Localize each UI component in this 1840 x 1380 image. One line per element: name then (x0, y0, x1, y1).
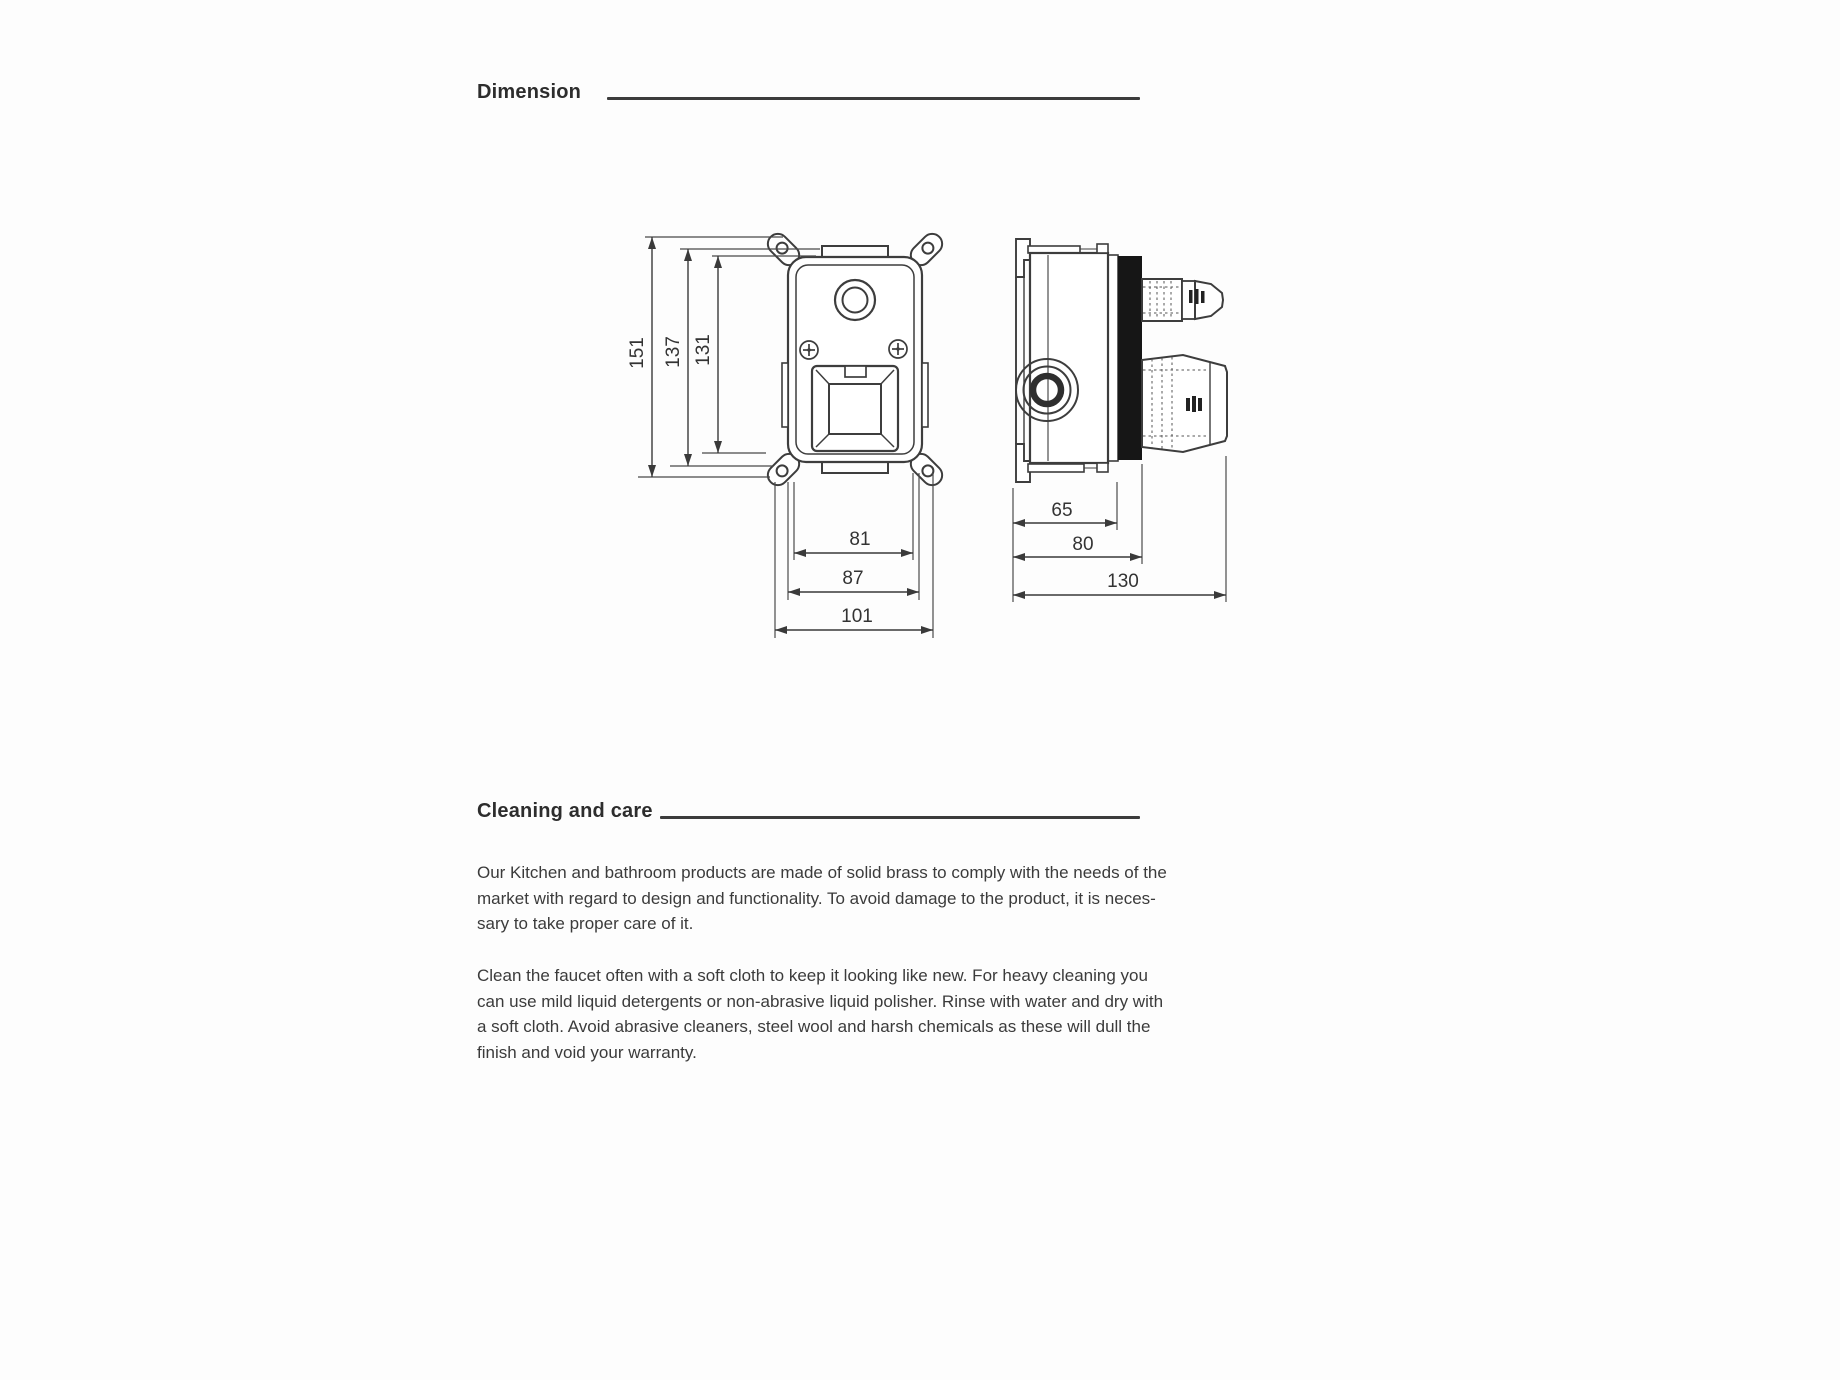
dim-label-inner-height: 131 (693, 334, 714, 366)
cleaning-section-rule (660, 816, 1140, 819)
dim-label-body-depth: 80 (1072, 534, 1093, 555)
dim-label-overall-height: 151 (627, 337, 648, 369)
dim-label-inner-width: 81 (849, 529, 870, 550)
lower-outlet (1142, 355, 1227, 452)
cleaning-paragraph-2: Clean the faucet often with a soft cloth… (477, 963, 1163, 1065)
front-view-drawing: 151 137 131 81 87 101 (627, 230, 946, 638)
upper-outlet (1142, 279, 1223, 321)
paragraph-line: market with regard to design and functio… (477, 886, 1167, 912)
paragraph-line: Our Kitchen and bathroom products are ma… (477, 860, 1167, 886)
left-screw (800, 341, 818, 359)
technical-drawing: 151 137 131 81 87 101 (520, 170, 1280, 670)
manual-page: Dimension (0, 0, 1840, 1380)
paragraph-line: finish and void your warranty. (477, 1040, 1163, 1066)
dim-label-seal-depth: 65 (1051, 500, 1072, 521)
side-view-drawing: 65 80 130 (1013, 239, 1227, 602)
valve-opening (812, 366, 898, 451)
dimension-section-rule (607, 97, 1140, 100)
cleaning-section-title: Cleaning and care (477, 799, 653, 823)
dim-label-body-height: 137 (663, 336, 684, 368)
paragraph-line: can use mild liquid detergents or non-ab… (477, 989, 1163, 1015)
rubber-seal-band (1118, 256, 1142, 460)
front-width-dims: 81 87 101 (775, 473, 933, 638)
dim-label-body-width: 87 (842, 568, 863, 589)
side-depth-dims: 65 80 130 (1013, 456, 1226, 602)
valve-body-side (1030, 253, 1108, 463)
cleaning-paragraph-1: Our Kitchen and bathroom products are ma… (477, 860, 1167, 937)
paragraph-line: sary to take proper care of it. (477, 911, 1167, 937)
mounting-flange (1016, 239, 1030, 482)
paragraph-line: a soft cloth. Avoid abrasive cleaners, s… (477, 1014, 1163, 1040)
dim-label-overall-width: 101 (841, 606, 873, 627)
dimension-section-title: Dimension (477, 80, 581, 104)
paragraph-line: Clean the faucet often with a soft cloth… (477, 963, 1163, 989)
dim-label-overall-depth: 130 (1107, 571, 1139, 592)
right-screw (889, 340, 907, 358)
